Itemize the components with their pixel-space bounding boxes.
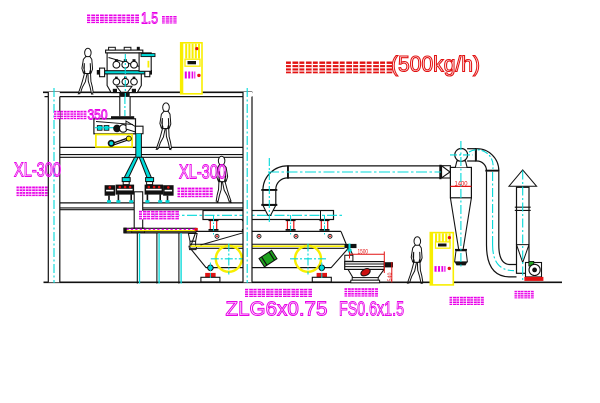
svg-text:XL-300: XL-300 — [14, 160, 61, 182]
svg-text:1.5: 1.5 — [141, 10, 158, 27]
svg-text:540: 540 — [388, 273, 394, 282]
svg-text:FS0.6x1.5: FS0.6x1.5 — [339, 299, 404, 321]
svg-text:XL-300: XL-300 — [179, 162, 226, 184]
svg-text:ZLG6x0.75: ZLG6x0.75 — [226, 299, 328, 321]
svg-text:350: 350 — [88, 108, 108, 124]
svg-text:(500kg/h): (500kg/h) — [391, 52, 480, 77]
